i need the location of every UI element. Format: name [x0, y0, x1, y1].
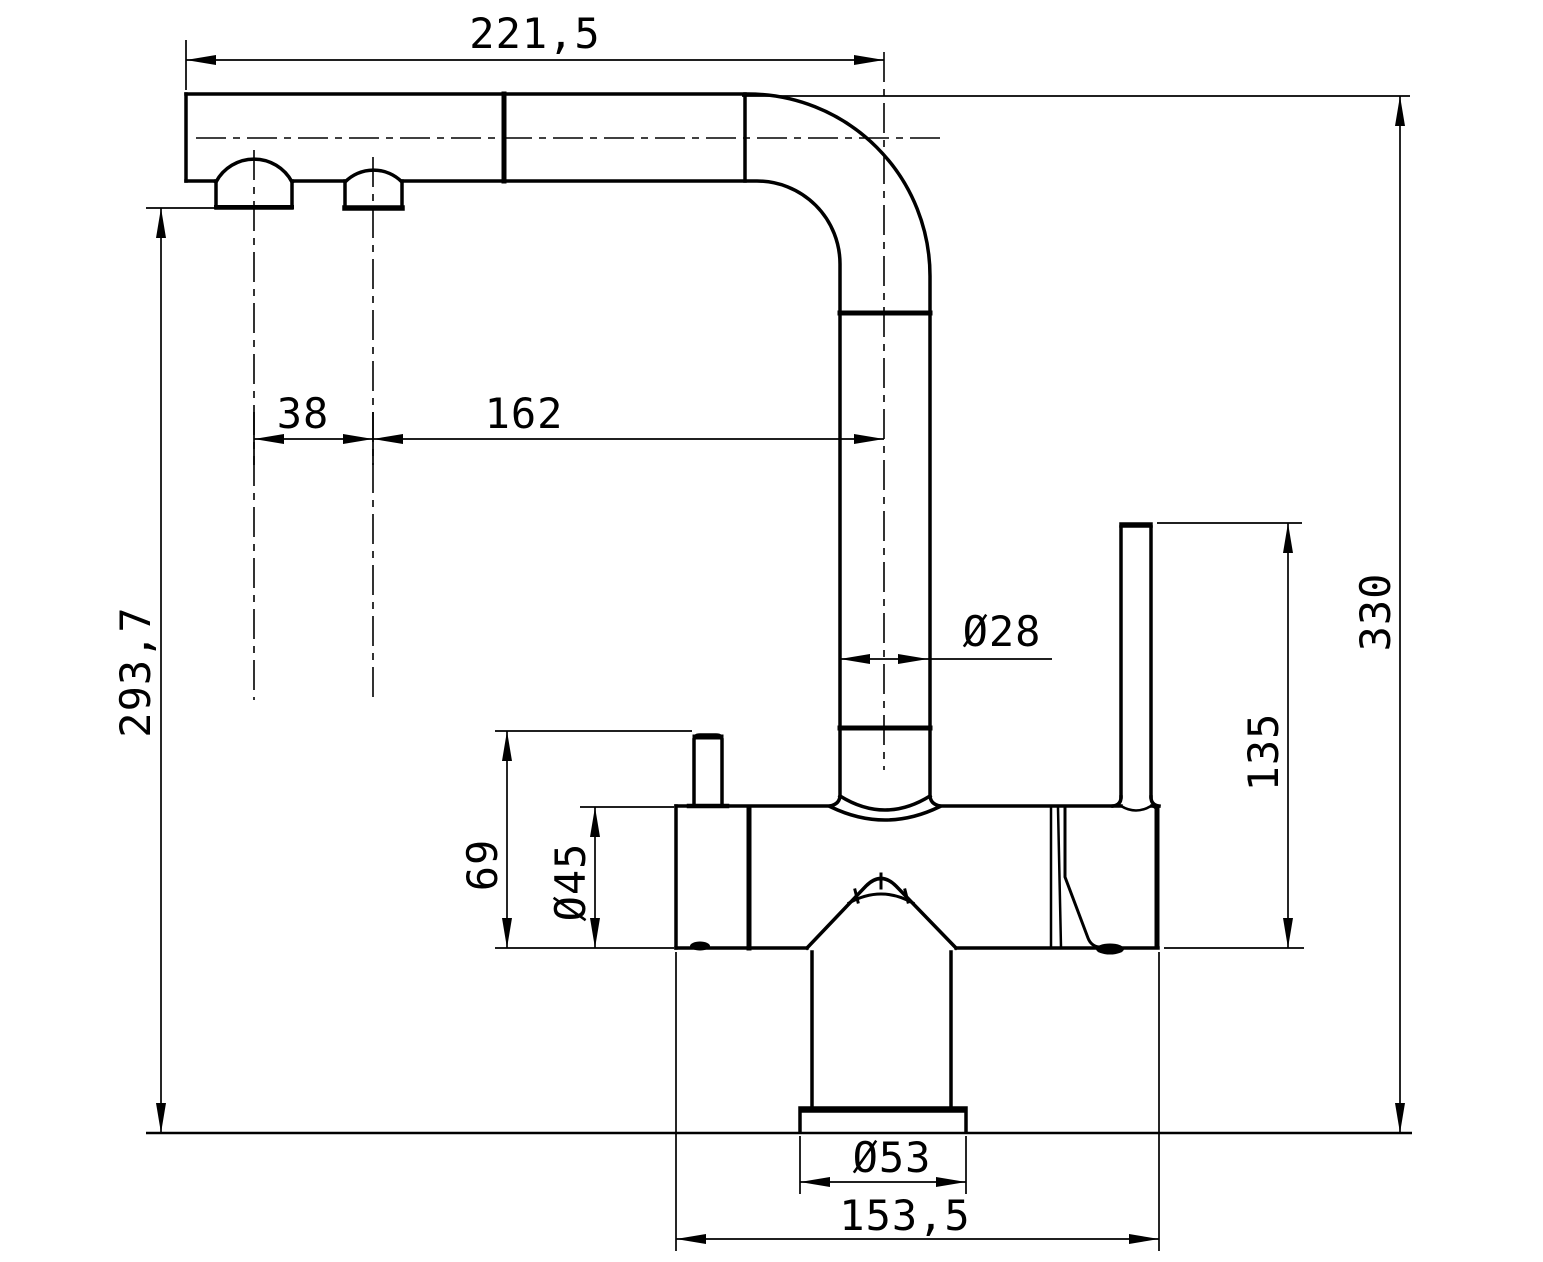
- dim-label-body-diameter: Ø45: [546, 843, 595, 922]
- side-pin: [689, 735, 727, 806]
- dimension-lines: [146, 40, 1412, 1251]
- dim-label-spout-reach: 221,5: [469, 9, 600, 58]
- riser-pipe: [830, 313, 940, 820]
- dim-label-aerator-spacing: 38: [277, 389, 330, 438]
- dimension-arrowheads: [156, 55, 1405, 1244]
- dim-label-side-pin-height: 69: [458, 839, 507, 892]
- handle-lever: [1113, 525, 1159, 811]
- joint-seams: [216, 94, 1157, 948]
- dim-label-aerator-to-riser: 162: [485, 389, 564, 438]
- spout: [186, 94, 930, 313]
- dim-label-spout-tube-diameter: Ø28: [963, 607, 1042, 656]
- dim-label-base-diameter: Ø53: [853, 1133, 932, 1182]
- aerator-outlets: [216, 159, 402, 208]
- dimension-labels: 221,5 38 162 293,7 330 Ø28 135 69 Ø45 Ø5…: [111, 9, 1400, 1240]
- dim-label-outlet-height: 293,7: [111, 606, 160, 737]
- faucet-dimension-drawing: 221,5 38 162 293,7 330 Ø28 135 69 Ø45 Ø5…: [0, 0, 1543, 1262]
- technical-drawing-canvas: 221,5 38 162 293,7 330 Ø28 135 69 Ø45 Ø5…: [0, 0, 1543, 1262]
- base-column: [800, 874, 966, 1132]
- dim-label-body-length: 153,5: [839, 1191, 970, 1240]
- dim-label-handle-height: 135: [1239, 713, 1288, 792]
- dim-label-overall-height: 330: [1351, 573, 1400, 652]
